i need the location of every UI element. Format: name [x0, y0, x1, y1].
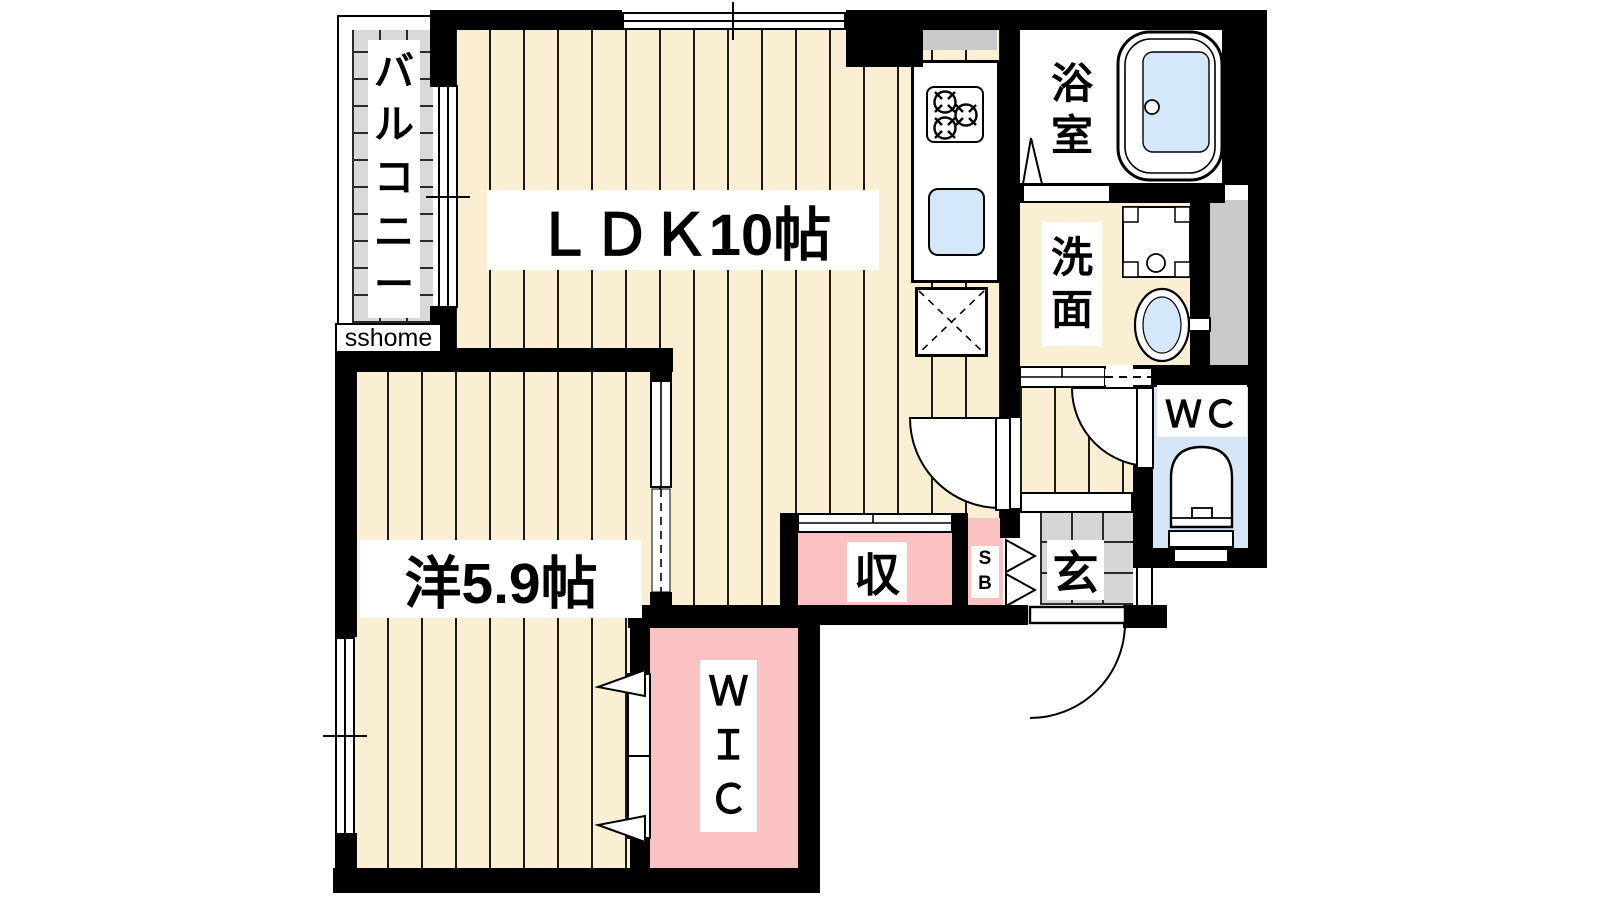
wic-label: Ｗ Ｉ Ｃ	[700, 660, 757, 832]
washing-machine-icon	[1123, 207, 1190, 277]
refrigerator-cross-icon	[919, 291, 984, 353]
shoebox-label: S B	[971, 546, 999, 598]
shoebox-doors-icon	[1006, 540, 1035, 606]
brand-label: sshome	[335, 323, 442, 353]
storage-sliding-door-icon	[798, 514, 952, 532]
wic-folding-door-icon	[598, 670, 650, 842]
bathroom-threshold	[1023, 185, 1110, 202]
wc-label: ＷＣ	[1157, 385, 1247, 437]
western-sliding-door-icon	[651, 381, 671, 592]
washroom-label: 洗 面	[1042, 222, 1102, 346]
washroom-sliding-door-icon	[1020, 367, 1151, 387]
ldk-hall-door-icon	[910, 418, 1010, 510]
wc-door-icon	[1072, 388, 1153, 468]
washbasin-icon	[1135, 289, 1210, 361]
toilet-icon	[1169, 447, 1233, 562]
stove-burners-icon	[935, 92, 977, 139]
entrance-door-icon	[1030, 607, 1125, 718]
bathroom-door-icon	[1023, 138, 1042, 184]
ldk-label: ＬＤＫ10帖	[487, 190, 879, 270]
balcony-label: バ ル コ ニ ー	[368, 40, 420, 318]
floor-plan: バ ル コ ニ ー sshome ＬＤＫ10帖 浴 室 洗 面 ＷＣ 洋5.9帖…	[0, 0, 1600, 900]
bathroom-label: 浴 室	[1042, 55, 1102, 165]
entrance-label: 玄	[1047, 540, 1104, 600]
storage-label: 収	[847, 542, 907, 602]
western-room-label: 洋5.9帖	[360, 540, 642, 618]
bathtub-icon	[1118, 32, 1222, 180]
